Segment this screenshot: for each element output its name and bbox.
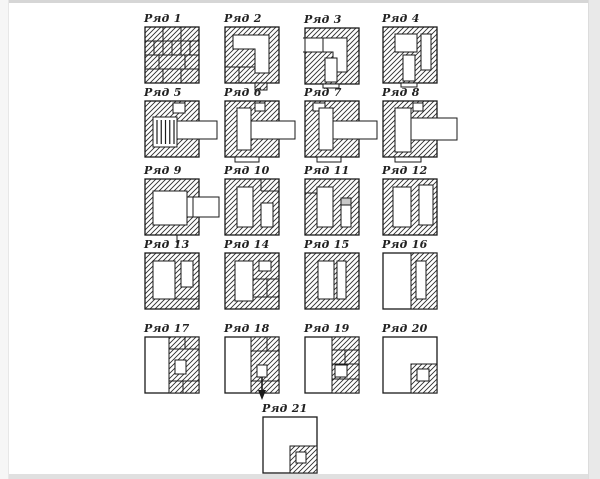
course-label-4: Ряд 4 <box>382 13 420 25</box>
course-cell-17: Ряд 17 <box>143 323 229 409</box>
course-diagram-16 <box>381 251 461 321</box>
course-cell-8: Ряд 8 <box>381 87 467 173</box>
course-diagram-4 <box>381 25 461 95</box>
course-cell-21: Ряд 21 <box>261 403 347 479</box>
course-label-13: Ряд 13 <box>144 239 190 251</box>
course-cell-5: Ряд 5 <box>143 87 229 173</box>
course-diagram-7 <box>303 99 383 169</box>
course-cell-15: Ряд 15 <box>303 239 389 325</box>
course-diagram-20 <box>381 335 461 405</box>
course-diagram-10 <box>223 177 303 247</box>
course-label-18: Ряд 18 <box>224 323 270 335</box>
course-label-7: Ряд 7 <box>304 87 342 99</box>
course-label-20: Ряд 20 <box>382 323 428 335</box>
frame-edge-top <box>0 0 600 3</box>
course-diagram-1 <box>143 25 223 95</box>
course-cell-13: Ряд 13 <box>143 239 229 325</box>
course-label-10: Ряд 10 <box>224 165 270 177</box>
course-label-15: Ряд 15 <box>304 239 350 251</box>
scanned-diagram-page: Ряд 1Ряд 2Ряд 3Ряд 4Ряд 5Ряд 6Ряд 7Ряд 8… <box>0 0 600 479</box>
course-cell-16: Ряд 16 <box>381 239 467 325</box>
course-label-6: Ряд 6 <box>224 87 262 99</box>
course-label-11: Ряд 11 <box>304 165 350 177</box>
course-label-19: Ряд 19 <box>304 323 350 335</box>
course-diagram-grid: Ряд 1Ряд 2Ряд 3Ряд 4Ряд 5Ряд 6Ряд 7Ряд 8… <box>0 0 600 479</box>
frame-edge-left <box>0 0 9 479</box>
course-label-21: Ряд 21 <box>262 403 308 415</box>
course-label-14: Ряд 14 <box>224 239 270 251</box>
course-diagram-14 <box>223 251 303 321</box>
course-label-9: Ряд 9 <box>144 165 182 177</box>
course-diagram-21 <box>261 415 341 479</box>
course-label-8: Ряд 8 <box>382 87 420 99</box>
course-cell-6: Ряд 6 <box>223 87 309 173</box>
course-cell-14: Ряд 14 <box>223 239 309 325</box>
course-cell-19: Ряд 19 <box>303 323 389 409</box>
course-diagram-12 <box>381 177 461 247</box>
course-label-12: Ряд 12 <box>382 165 428 177</box>
course-diagram-15 <box>303 251 383 321</box>
course-diagram-6 <box>223 99 303 169</box>
course-diagram-9 <box>143 177 223 247</box>
frame-edge-right <box>588 0 600 479</box>
course-diagram-17 <box>143 335 223 405</box>
course-diagram-19 <box>303 335 383 405</box>
course-diagram-8 <box>381 99 461 169</box>
course-diagram-18 <box>223 335 303 405</box>
course-cell-7: Ряд 7 <box>303 87 389 173</box>
course-label-1: Ряд 1 <box>144 13 182 25</box>
course-diagram-11 <box>303 177 383 247</box>
course-diagram-2 <box>223 25 303 95</box>
course-label-3: Ряд 3 <box>304 14 342 26</box>
course-label-2: Ряд 2 <box>224 13 262 25</box>
course-diagram-13 <box>143 251 223 321</box>
frame-edge-bottom <box>0 474 600 479</box>
course-cell-20: Ряд 20 <box>381 323 467 409</box>
course-label-16: Ряд 16 <box>382 239 428 251</box>
course-diagram-5 <box>143 99 223 169</box>
course-label-5: Ряд 5 <box>144 87 182 99</box>
course-label-17: Ряд 17 <box>144 323 190 335</box>
course-cell-18: Ряд 18 <box>223 323 309 409</box>
